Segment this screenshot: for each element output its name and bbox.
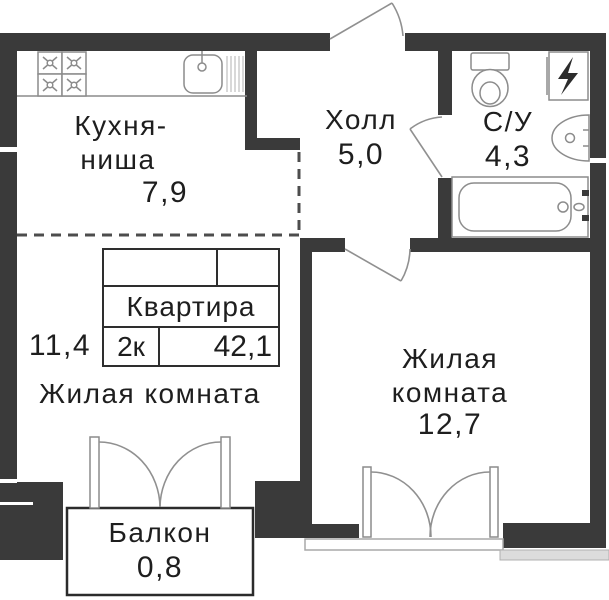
floor-plan-drawing (0, 0, 609, 600)
toilet-bowl-inner (480, 82, 500, 104)
card-title: Квартира (104, 287, 278, 328)
burner-center (71, 60, 77, 66)
wall-joint (0, 502, 33, 505)
wall-segment (438, 178, 452, 238)
door-leaf (410, 129, 442, 177)
wall-segment (300, 252, 312, 482)
door-leaf (221, 437, 230, 508)
wall-joint (590, 158, 606, 163)
door-swing-arc (371, 472, 431, 537)
balcony-area-label: 0,8 (95, 552, 225, 584)
kitchen-sink-icon (184, 51, 222, 93)
exterior-ledge (500, 550, 609, 560)
burner-center (47, 82, 53, 88)
wall-joint (0, 479, 17, 483)
burner-center (47, 60, 53, 66)
door-swing-arc (410, 117, 442, 129)
door-leaf (90, 437, 99, 508)
kitchen-counter (17, 51, 247, 96)
wall-segment (0, 33, 17, 482)
entrance-door-icon (330, 3, 403, 39)
drainboard-lines (227, 56, 243, 92)
toilet-tank (471, 53, 509, 70)
door-leaf (345, 249, 401, 281)
kitchen-area-label: 7,9 (135, 177, 195, 209)
bathtub-inner (459, 183, 571, 231)
electric-panel-icon (547, 52, 588, 100)
card-total-area: 42,1 (160, 328, 278, 365)
bathroom-name-label: С/У (470, 106, 546, 138)
wall-segment (255, 481, 312, 538)
bathroom-area-label: 4,3 (470, 141, 546, 173)
wall-segment (245, 138, 300, 150)
wall-segment (438, 51, 452, 115)
door-swing-arc (392, 3, 403, 36)
card-rooms-code: 2к (104, 328, 160, 365)
balcony-name-label: Балкон (95, 517, 225, 549)
basin-drain (566, 134, 575, 143)
door-swing-arc (160, 442, 221, 507)
kitchen-name-label-2: ниша (58, 144, 178, 176)
hall-area-label: 5,0 (318, 139, 404, 171)
card-header-cell (218, 250, 278, 285)
door-swing-arc (430, 472, 490, 537)
apartment-info-card: Квартира 2к 42,1 (102, 248, 280, 367)
pipe-mark (582, 215, 589, 221)
living2-name-label: Жилая (385, 343, 515, 375)
wall-segment (0, 33, 330, 51)
bathroom-door-icon (410, 117, 442, 177)
wall-segment (410, 238, 606, 252)
bathtub-icon (452, 177, 589, 237)
living2-name-label-2: комната (385, 377, 515, 409)
living2-door-icon (345, 249, 410, 281)
door-leaf (490, 467, 498, 537)
window-sill (305, 539, 503, 550)
wall-segment (405, 33, 606, 51)
faucet-head (198, 63, 206, 71)
bathtub-faucet (574, 204, 584, 211)
drainboard-icon (227, 56, 243, 92)
door-leaf (363, 467, 371, 537)
pipe-mark (582, 190, 589, 196)
wall-segment (312, 524, 359, 538)
balcony-french-door-icon (90, 437, 230, 508)
hall-name-label: Холл (318, 104, 404, 136)
wall-segment (590, 33, 606, 548)
sink-bowl (184, 55, 222, 93)
card-bottom-row: 2к 42,1 (104, 328, 278, 365)
door-swing-arc (401, 249, 410, 281)
door-swing-arc (99, 442, 160, 507)
floor-plan: Кухня- ниша 7,9 Холл 5,0 С/У 4,3 11,4 Жи… (0, 0, 609, 600)
door-leaf (330, 3, 392, 39)
living2-area-label: 12,7 (385, 409, 515, 441)
wall-segment (245, 51, 257, 150)
wall-segment (300, 238, 345, 252)
card-header-cell (104, 250, 218, 285)
bathtub-drain (558, 202, 568, 212)
stove-icon (38, 52, 86, 96)
living1-area-label: 11,4 (22, 330, 98, 362)
toilet-icon (471, 53, 509, 107)
wall-joint (0, 147, 17, 152)
wall-segment (0, 482, 63, 560)
kitchen-name-label: Кухня- (61, 110, 181, 142)
living1-name-label: Жилая комната (16, 378, 284, 410)
washbasin-icon (552, 115, 589, 161)
wall-segment (503, 523, 606, 548)
card-header-row (104, 250, 278, 287)
burner-center (71, 82, 77, 88)
